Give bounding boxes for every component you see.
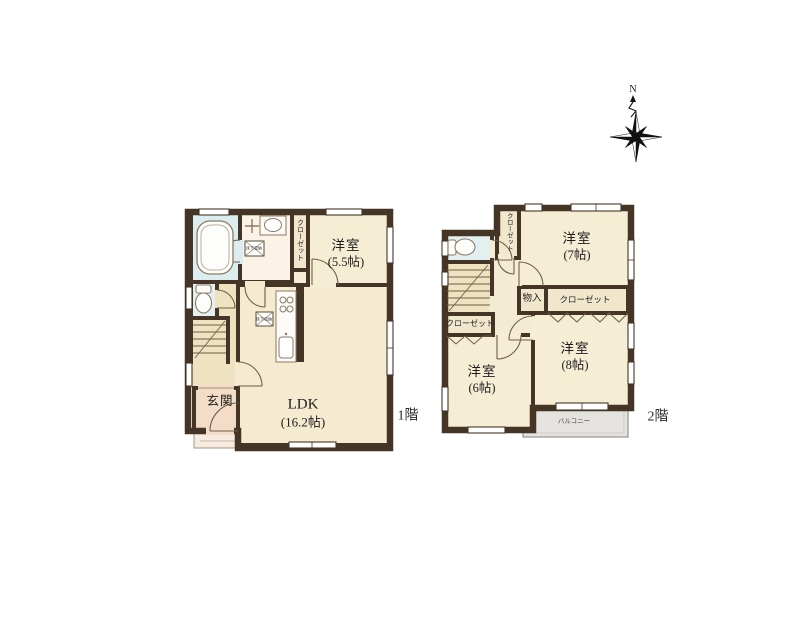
room-name: 洋室 (468, 364, 497, 379)
window-slider (289, 442, 336, 448)
toilet-icon-f1 (196, 285, 212, 313)
floorplan-drawing (0, 0, 798, 630)
floor2-label: 2階 (648, 408, 669, 426)
western-room-8-label: 洋室 (8帖) (561, 341, 590, 374)
storage-label: 物入 (522, 294, 541, 306)
window (442, 241, 448, 256)
window (628, 323, 634, 349)
closet-left-label: クローゼット (446, 319, 494, 329)
western-room-7-label: 洋室 (7帖) (563, 231, 592, 264)
room-size: (7帖) (563, 248, 592, 264)
floorplan-canvas: 洋室 (5.5帖) LDK (16.2帖) 玄関 クローゼット 床下収納 床下収… (0, 0, 798, 630)
floor1-label: 1階 (398, 407, 419, 425)
ldk-label: LDK (16.2帖) (281, 396, 325, 431)
window (468, 427, 505, 433)
toilet-icon-f2 (448, 239, 475, 255)
north-arrow-zigzag (629, 102, 636, 117)
balcony-label: バルコニー (558, 418, 590, 426)
underfloor-storage-2-label: 床下収納 (256, 317, 272, 322)
room-size: (8帖) (561, 358, 590, 374)
western-room-6-label: 洋室 (6帖) (468, 364, 497, 397)
room-size: (6帖) (468, 381, 497, 397)
room-name: 洋室 (561, 341, 590, 356)
closet-f1-label: クローゼット (297, 219, 304, 261)
kitchen-sink-icon (279, 333, 293, 358)
western-room-5-5-label: 洋室 (5.5帖) (328, 238, 364, 271)
window (199, 209, 229, 215)
room-name: 洋室 (331, 238, 360, 253)
room-name: LDK (288, 397, 319, 413)
window (186, 363, 192, 386)
window (442, 387, 448, 411)
window (387, 227, 393, 263)
underfloor-storage-1-label: 床下収納 (246, 246, 262, 251)
closet-nook (292, 270, 308, 285)
room-size: (5.5帖) (328, 255, 364, 271)
closet-top-label: クローゼット (505, 213, 512, 252)
room-size: (16.2帖) (281, 414, 325, 430)
closet-right-label: クローゼット (559, 295, 610, 306)
compass-rose (610, 95, 662, 162)
window (326, 209, 362, 215)
window (525, 204, 542, 211)
compass-north-label: N (629, 84, 636, 97)
window (186, 287, 192, 309)
entrance-label: 玄関 (206, 394, 233, 410)
compass-star (610, 112, 662, 162)
room-name: 洋室 (563, 231, 592, 246)
kitchen-wall-stub (296, 285, 304, 362)
window (628, 362, 634, 384)
